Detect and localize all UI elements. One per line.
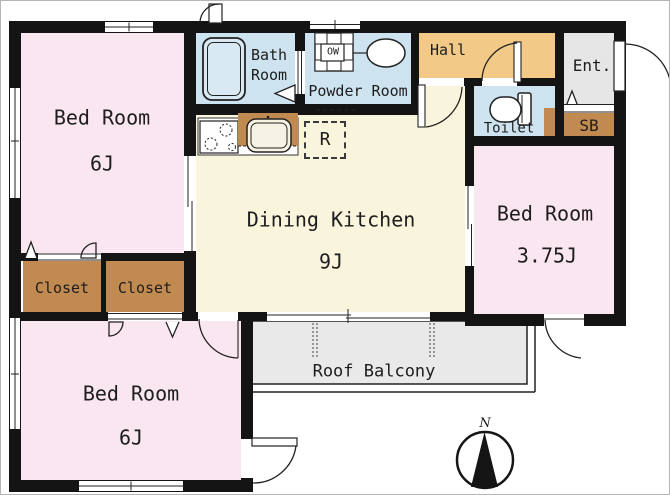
- floor-plan: Bed Room 6J Bath Room Powder Room Hall E…: [0, 0, 670, 495]
- bedroom-top-size: 6J: [90, 151, 114, 178]
- bedroom-bottom-size: 6J: [119, 425, 143, 452]
- compass-icon: [457, 432, 513, 488]
- balcony-partition-marks: [313, 323, 434, 358]
- shoe-box-label: SB: [579, 115, 598, 137]
- door-bedroom-right-exterior: [544, 315, 584, 358]
- room-corridor: [419, 86, 465, 115]
- bedroom-right-size: 3.75J: [517, 243, 577, 270]
- window-left-wall-lower: [10, 318, 20, 429]
- window-powder-top-wall: [310, 20, 360, 29]
- dining-kitchen-size: 9J: [319, 249, 343, 276]
- dining-kitchen-label: Dining Kitchen: [247, 207, 416, 234]
- bath-label: Bath Room: [251, 45, 287, 86]
- door-entrance: [614, 41, 670, 91]
- sliding-door-bedroom-right: [465, 186, 474, 266]
- window-top-bedroom-top-wall: [105, 22, 153, 32]
- bedroom-top-label: Bed Room: [54, 105, 150, 132]
- window-left-wall-upper: [10, 88, 20, 198]
- bedroom-bottom-label: Bed Room: [83, 381, 179, 408]
- toilet-label: Toilet: [484, 120, 535, 139]
- door-bath-exterior: [200, 4, 222, 23]
- closet-left-opening: [38, 253, 101, 261]
- window-bottom-wall: [79, 481, 183, 491]
- door-bedroom-bottom-exterior: [242, 438, 297, 483]
- room-bedroom-right: [474, 146, 614, 314]
- toilet-counter: [544, 108, 555, 136]
- room-bedroom-top: [21, 33, 184, 253]
- closet-right-opening: [108, 312, 182, 321]
- bedroom-right-label: Bed Room: [497, 201, 593, 228]
- entrance-step-lines: [564, 104, 614, 113]
- powder-room-label: Powder Room: [308, 81, 407, 101]
- hall-label: Hall: [430, 40, 466, 60]
- entrance-label: Ent.: [573, 55, 612, 77]
- washing-machine-label: OW: [327, 45, 339, 59]
- closet-right-label: Closet: [118, 278, 172, 298]
- sliding-door-bedroom-top: [184, 156, 196, 251]
- roof-balcony-label: Roof Balcony: [313, 361, 436, 384]
- refrigerator-label: R: [320, 128, 331, 152]
- closet-left-label: Closet: [35, 278, 89, 298]
- compass-north-label: N: [479, 415, 490, 433]
